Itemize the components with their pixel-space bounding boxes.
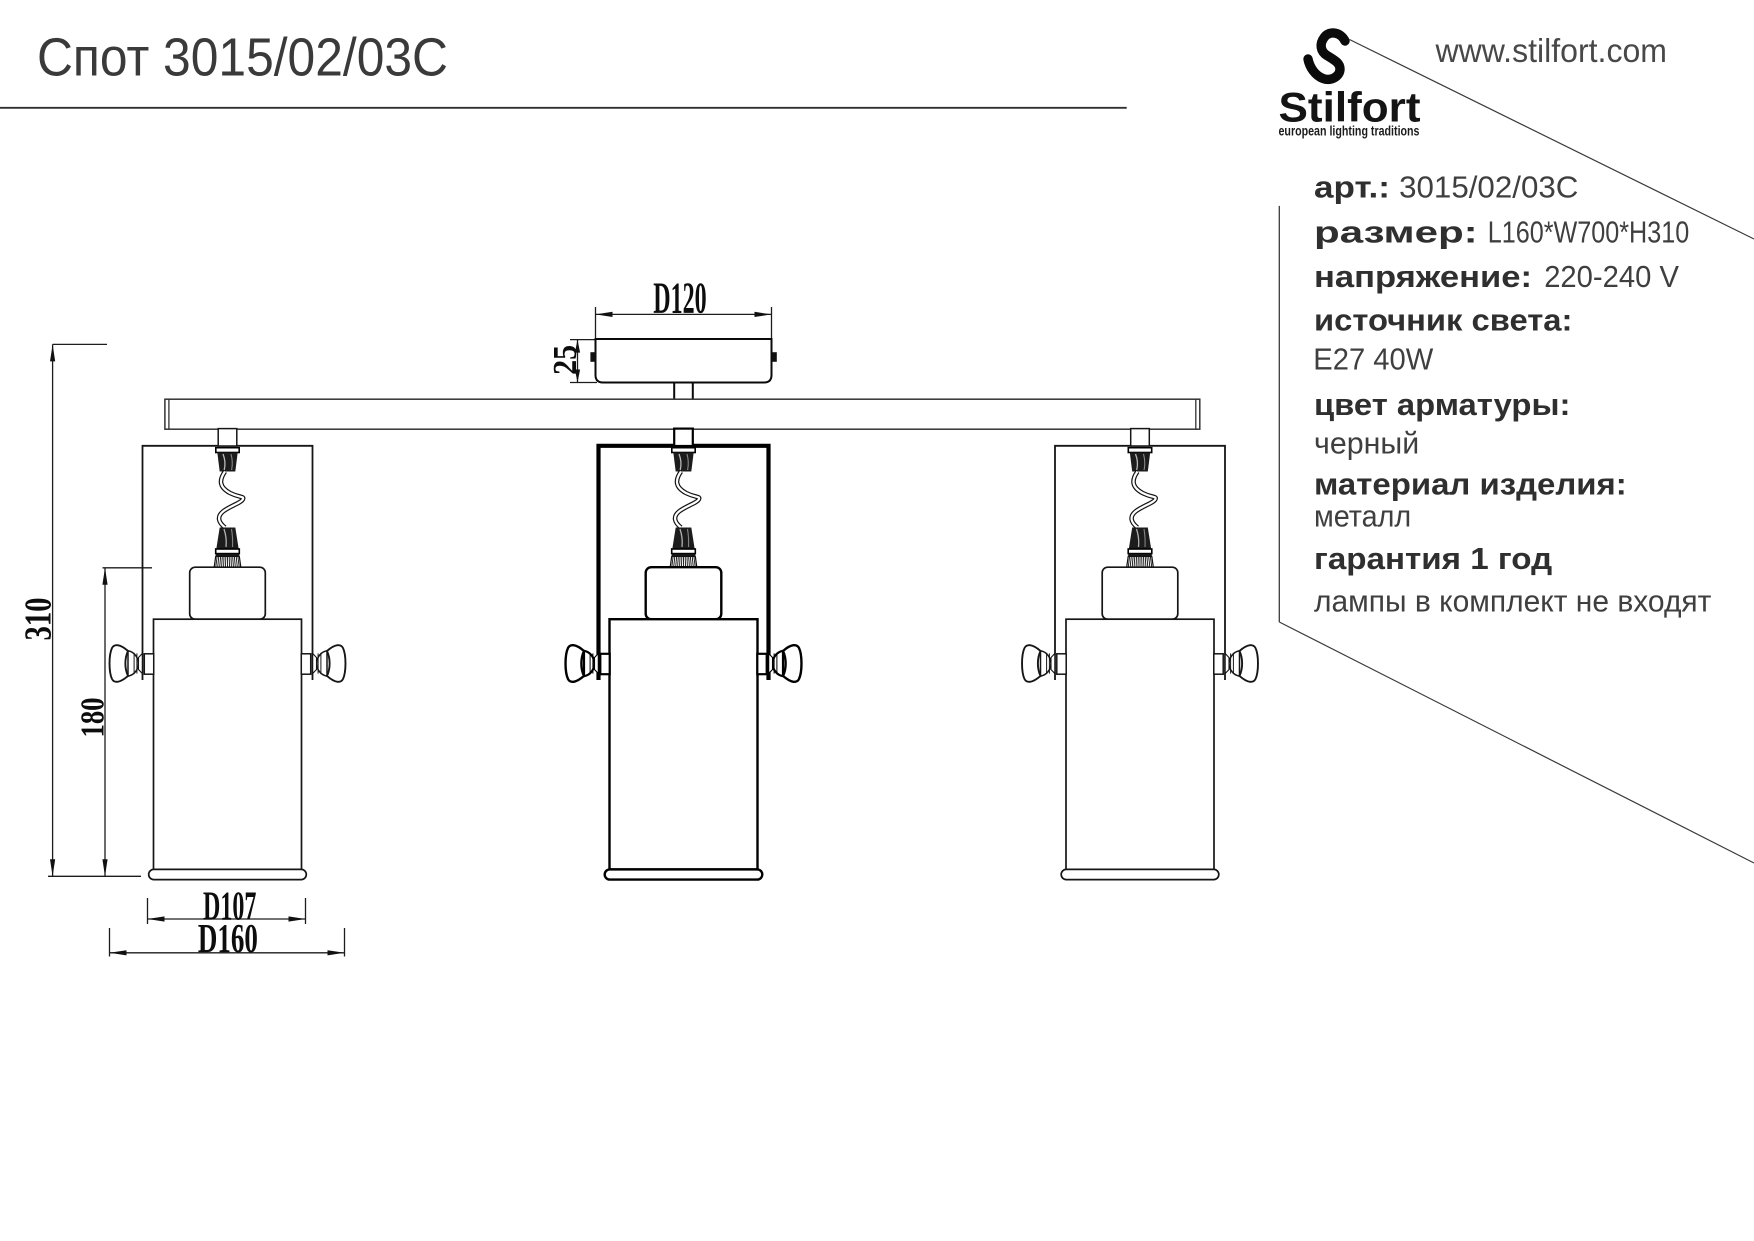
svg-text:источник света:: источник света: xyxy=(1314,304,1572,338)
svg-text:арт.:: арт.: xyxy=(1314,171,1390,205)
svg-text:Спот 3015/02/03C: Спот 3015/02/03C xyxy=(37,28,448,88)
svg-text:25: 25 xyxy=(547,345,584,375)
svg-text:лампы в комплект не входят: лампы в комплект не входят xyxy=(1314,583,1711,618)
svg-text:european lighting traditions: european lighting traditions xyxy=(1279,124,1420,139)
svg-text:напряжение:: напряжение: xyxy=(1314,260,1532,294)
svg-text:размер:: размер: xyxy=(1314,216,1478,250)
svg-text:220-240 V: 220-240 V xyxy=(1544,259,1679,294)
svg-text:материал изделия:: материал изделия: xyxy=(1314,468,1627,502)
svg-text:черный: черный xyxy=(1314,425,1419,460)
svg-text:180: 180 xyxy=(75,698,112,738)
svg-text:D160: D160 xyxy=(198,915,258,961)
svg-text:D120: D120 xyxy=(653,274,706,323)
svg-text:www.stilfort.com: www.stilfort.com xyxy=(1435,32,1667,69)
svg-text:310: 310 xyxy=(17,598,59,641)
svg-text:металл: металл xyxy=(1314,499,1411,534)
svg-text:3015/02/03C: 3015/02/03C xyxy=(1399,170,1578,205)
svg-text:L160*W700*H310: L160*W700*H310 xyxy=(1488,215,1689,250)
svg-text:гарантия 1 год: гарантия 1 год xyxy=(1314,542,1552,576)
svg-text:цвет арматуры:: цвет арматуры: xyxy=(1314,388,1570,422)
svg-text:E27 40W: E27 40W xyxy=(1313,342,1434,377)
